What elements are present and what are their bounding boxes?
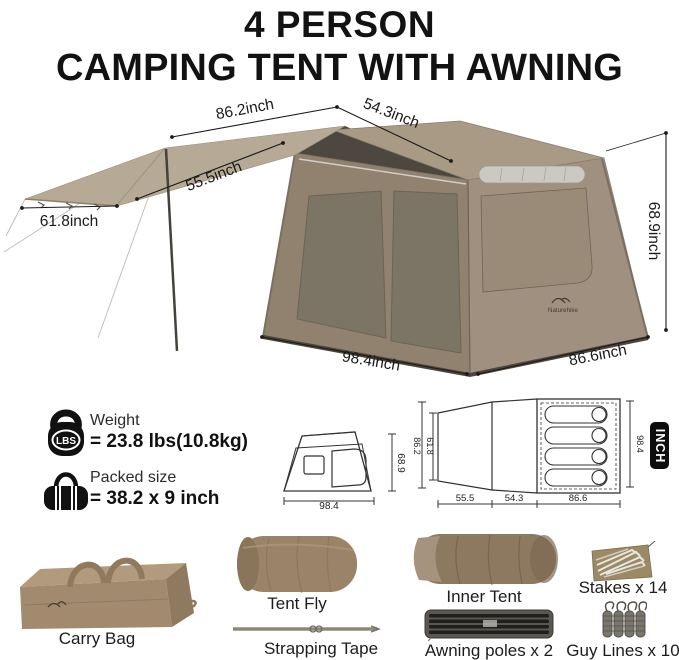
inner-tent-label: Inner Tent	[446, 587, 521, 607]
strapping-tape-label: Strapping Tape	[264, 639, 378, 659]
plan-room-depth: 86.6	[569, 493, 588, 504]
dim-awning-front-edge: 61.8inch	[40, 213, 99, 231]
mesh-door-right	[391, 191, 461, 353]
plan-awning	[438, 402, 492, 490]
plan-porch-depth: 54.3	[505, 493, 524, 504]
lbs-weight-icon: LBS	[44, 404, 88, 458]
inner-tent-image	[406, 526, 564, 588]
weight-spec: Weight = 23.8 lbs(10.8kg)	[90, 412, 248, 453]
awning-poles-image	[423, 607, 555, 641]
tent-fly-label: Tent Fly	[267, 594, 327, 614]
page-title: 4 PERSON CAMPING TENT WITH AWNING	[0, 4, 679, 90]
carry-bag-image	[10, 543, 210, 635]
front-view-diagram: 98.4 68.9	[276, 421, 408, 516]
plan-awning-inner: 61.8	[425, 437, 435, 455]
packed-size-spec: Packed size = 38.2 x 9 inch	[90, 469, 219, 510]
unit-badge-text: INCH	[653, 428, 667, 463]
plan-awning-outer: 86.2	[412, 437, 422, 455]
duffel-bag-icon	[42, 466, 90, 512]
title-line-1: 4 PERSON	[0, 4, 679, 47]
plan-room	[537, 399, 620, 493]
front-view-height: 68.9	[395, 453, 406, 473]
lbs-text: LBS	[56, 436, 76, 447]
plan-room-width: 98.4	[635, 435, 645, 453]
guy-lines-image	[599, 597, 647, 643]
stakes-label: Stakes x 14	[579, 578, 668, 598]
packed-value: = 38.2 x 9 inch	[90, 488, 219, 510]
awning-poles-label: Awning poles x 2	[425, 641, 553, 660]
front-view-width: 98.4	[319, 501, 339, 512]
tent-fly-image	[233, 524, 363, 596]
side-window	[481, 188, 592, 292]
stakes-image	[590, 541, 656, 583]
dim-tent-height: 68.9inch	[644, 202, 662, 261]
strapping-tape-image	[229, 621, 381, 637]
guy-lines-label: Guy Lines x 10	[566, 641, 679, 660]
floor-plan-diagram: 86.2 61.8 55.5 54.3 86.6 98.4	[406, 393, 646, 515]
plan-awning-depth: 55.5	[456, 493, 475, 504]
carry-bag-label: Carry Bag	[59, 629, 136, 649]
rolled-window-cover	[479, 166, 585, 183]
product-infographic: 4 PERSON CAMPING TENT WITH AWNING	[0, 0, 679, 660]
mesh-door-left	[297, 191, 386, 338]
brand-text: Naturehike	[548, 307, 578, 314]
title-line-2: CAMPING TENT WITH AWNING	[0, 47, 679, 91]
packed-label: Packed size	[90, 469, 219, 487]
weight-label: Weight	[90, 412, 248, 430]
weight-value: = 23.8 lbs(10.8kg)	[90, 431, 248, 453]
unit-badge: INCH	[650, 422, 669, 469]
